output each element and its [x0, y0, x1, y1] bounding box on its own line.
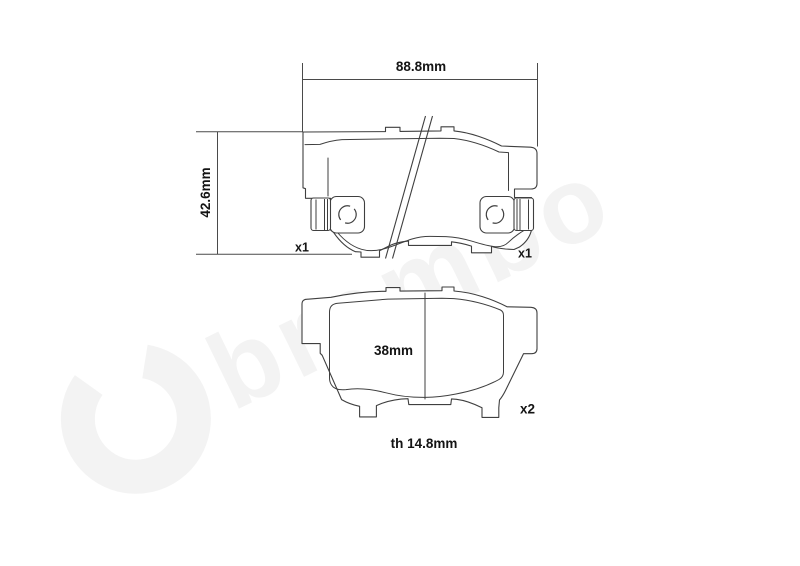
brake-pad-drawing: brembo: [0, 0, 800, 566]
right-ear-lug: [480, 197, 515, 234]
friction-view-drawing: [302, 287, 537, 417]
pad-height-label: 38mm: [374, 343, 413, 358]
qty-left-label: x1: [295, 241, 309, 255]
left-ear-lug: [330, 197, 365, 234]
right-abutment-clip: [514, 198, 534, 231]
brembo-logo-disc-icon: [70, 352, 203, 485]
back-view-drawing: [303, 116, 537, 259]
qty-right-label: x1: [518, 247, 532, 261]
technical-drawing-canvas: brembo: [0, 0, 800, 566]
dim-width-label: 88.8mm: [396, 59, 446, 74]
thickness-label: th 14.8mm: [391, 436, 458, 451]
qty-front-label: x2: [520, 402, 535, 417]
dim-height-label: 42.6mm: [198, 167, 213, 217]
left-abutment-clip: [311, 198, 331, 231]
